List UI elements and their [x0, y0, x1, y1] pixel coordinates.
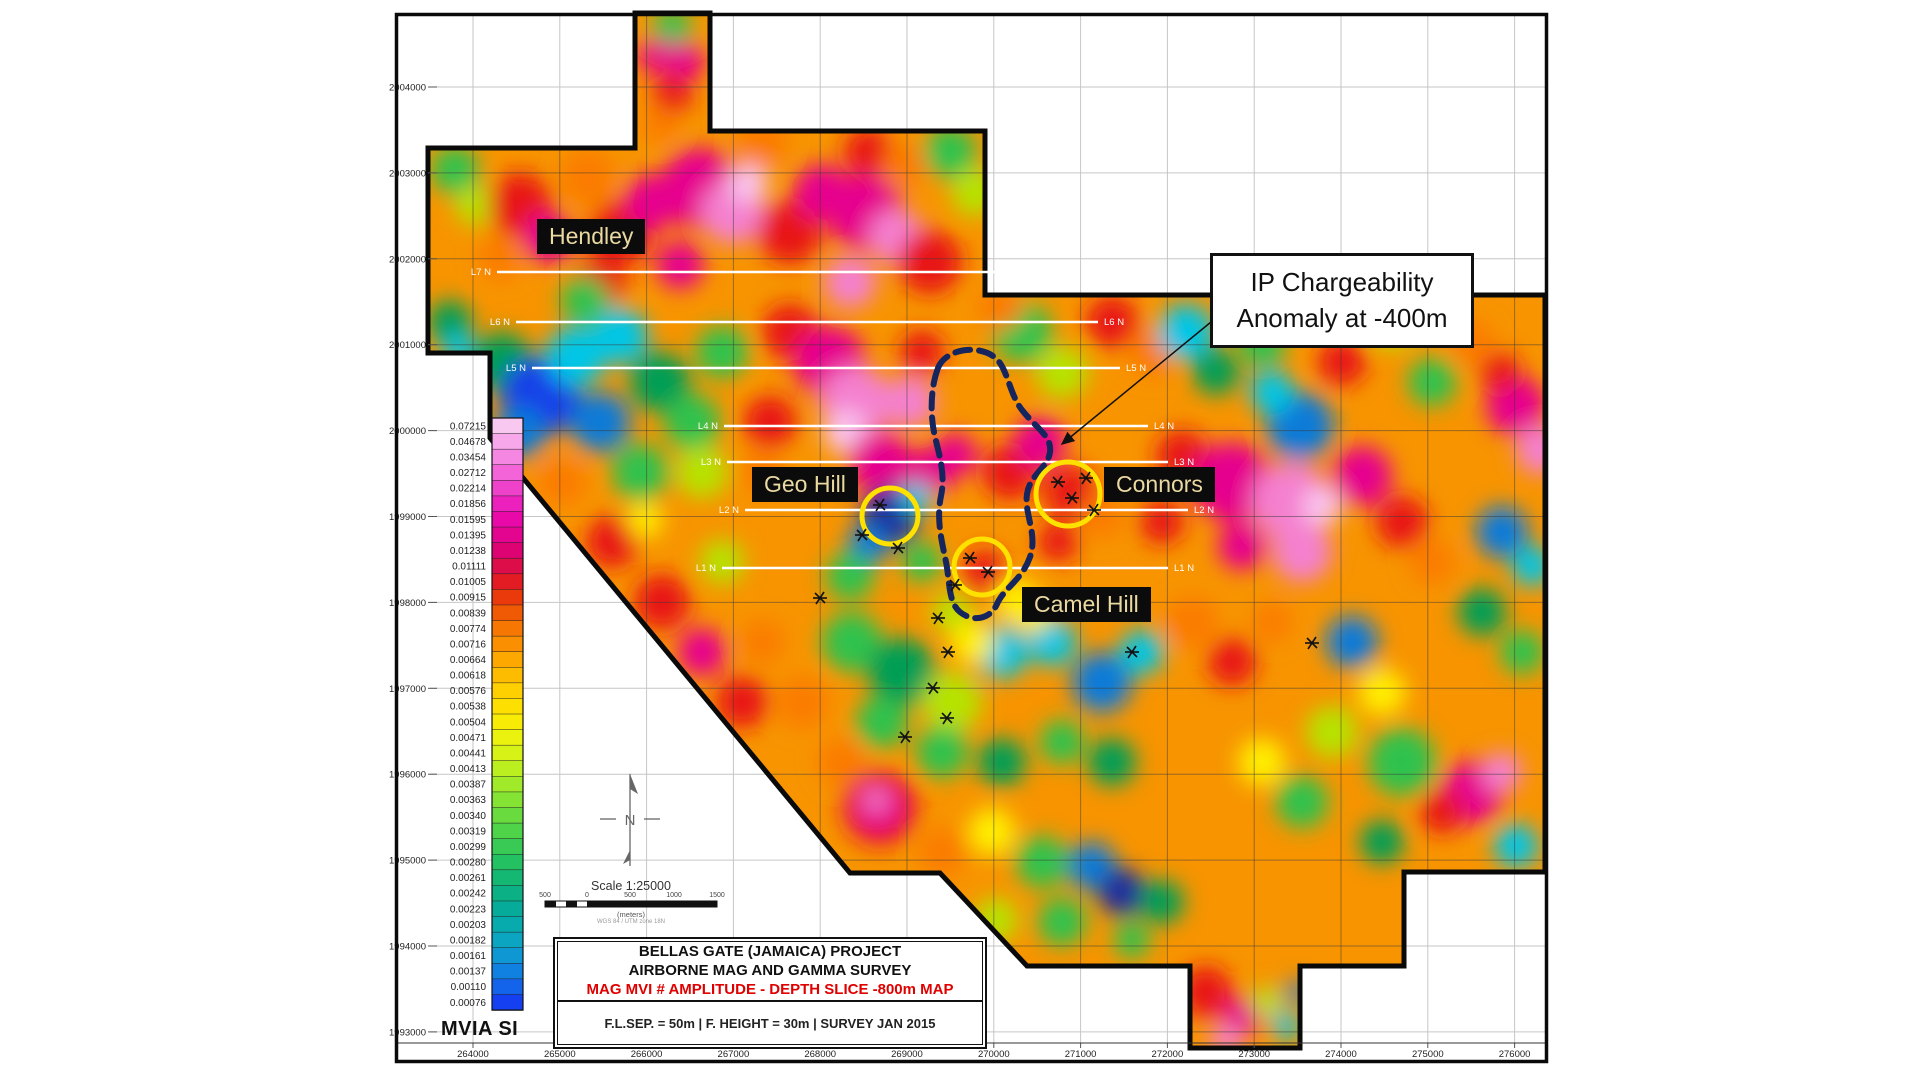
legend-value: 0.00576	[450, 686, 487, 697]
x-axis-label: 273000	[1238, 1049, 1270, 1060]
legend-value: 0.00242	[450, 889, 487, 900]
legend-value: 0.04678	[450, 437, 487, 448]
flight-line-label: L2 N	[719, 505, 739, 516]
mag-heatmap	[420, 8, 1564, 1056]
legend-value: 0.00538	[450, 702, 487, 713]
legend-value: 0.00839	[450, 608, 487, 619]
scale-caption: Scale 1:25000	[591, 879, 671, 893]
ip-anomaly-annotation-line1: IP Chargeability	[1250, 265, 1433, 300]
scale-tick-label: 500	[539, 892, 551, 899]
legend-value: 0.00137	[450, 967, 487, 978]
scale-tick-label: 0	[585, 892, 589, 899]
y-axis-label: 1993000	[389, 1027, 426, 1038]
scale-tick-label: 1000	[666, 892, 682, 899]
map-title-block-inner: BELLAS GATE (JAMAICA) PROJECT AIRBORNE M…	[557, 941, 983, 1045]
x-axis-label: 265000	[544, 1049, 576, 1060]
north-arrow: N	[600, 774, 660, 866]
legend-value: 0.00280	[450, 858, 487, 869]
survey-spec-line: F.L.SEP. = 50m | F. HEIGHT = 30m | SURVE…	[558, 1002, 982, 1044]
map-canvas: L7 NL7 NL6 NL6 NL5 NL5 NL4 NL4 NL3 NL3 N…	[0, 0, 1920, 1080]
survey-title: AIRBORNE MAG AND GAMMA SURVEY	[629, 962, 912, 980]
legend-value: 0.01595	[450, 515, 487, 526]
legend-value: 0.00774	[450, 624, 487, 635]
scale-tick-label: 500	[624, 892, 636, 899]
legend-value: 0.00413	[450, 764, 487, 775]
legend-value: 0.00110	[451, 982, 487, 993]
legend-value: 0.00161	[450, 951, 487, 962]
x-axis-label: 272000	[1152, 1049, 1184, 1060]
legend-title: MVIA SI	[441, 1018, 518, 1041]
flight-line-label: L2 N	[1194, 505, 1214, 516]
legend-value: 0.00319	[450, 826, 487, 837]
legend-value: 0.07215	[450, 421, 487, 432]
legend-value: 0.00664	[450, 655, 487, 666]
flight-line-label: L5 N	[506, 363, 526, 374]
y-axis-label: 2001000	[389, 340, 426, 351]
x-axis-label: 264000	[457, 1049, 489, 1060]
flight-line-label: L6 N	[490, 317, 510, 328]
flight-line-label: L6 N	[1104, 317, 1124, 328]
x-axis-label: 266000	[631, 1049, 663, 1060]
x-axis-label: 268000	[804, 1049, 836, 1060]
legend-value: 0.00618	[450, 671, 487, 682]
svg-text:N: N	[625, 812, 636, 829]
legend-value: 0.03454	[450, 452, 487, 463]
legend-value: 0.01005	[450, 577, 487, 588]
legend-value: 0.00471	[450, 733, 487, 744]
x-axis-label: 267000	[718, 1049, 750, 1060]
flight-line-label: L7 N	[471, 267, 491, 278]
legend-value: 0.00387	[450, 780, 487, 791]
y-axis-label: 1995000	[389, 856, 426, 867]
scale-bar: 500050010001500	[539, 892, 725, 907]
flight-line-label: L1 N	[1174, 563, 1194, 574]
legend-value: 0.00299	[450, 842, 487, 853]
flight-line-label: L1 N	[696, 563, 716, 574]
flight-line-label: L4 N	[698, 421, 718, 432]
flight-line-label: L4 N	[1154, 421, 1174, 432]
project-title: BELLAS GATE (JAMAICA) PROJECT	[639, 943, 901, 961]
scale-tick-label: 1500	[709, 892, 725, 899]
x-axis-label: 276000	[1499, 1049, 1531, 1060]
map-title-block-titles: BELLAS GATE (JAMAICA) PROJECT AIRBORNE M…	[558, 942, 982, 1002]
scale-units: (meters)	[617, 910, 645, 919]
y-axis-label: 2004000	[389, 83, 426, 94]
y-axis-label: 1996000	[389, 770, 426, 781]
y-axis-label: 1997000	[389, 684, 426, 695]
place-label-hendley: Hendley	[537, 219, 645, 254]
y-axis-label: 2003000	[389, 168, 426, 179]
legend-value: 0.02712	[450, 468, 487, 479]
x-axis-label: 269000	[891, 1049, 923, 1060]
legend-value: 0.00182	[450, 935, 487, 946]
legend-value: 0.01856	[450, 499, 487, 510]
legend-value: 0.01238	[450, 546, 487, 557]
flight-line-label: L3 N	[701, 457, 721, 468]
map-title-block: BELLAS GATE (JAMAICA) PROJECT AIRBORNE M…	[553, 937, 987, 1049]
legend-value: 0.01111	[452, 562, 486, 573]
x-axis-label: 271000	[1065, 1049, 1097, 1060]
legend-value: 0.00716	[450, 639, 487, 650]
legend-value: 0.00915	[450, 593, 487, 604]
legend-value: 0.00441	[450, 749, 487, 760]
legend-value: 0.00340	[450, 811, 487, 822]
legend-value: 0.00203	[450, 920, 487, 931]
y-axis-label: 1999000	[389, 512, 426, 523]
ip-anomaly-annotation: IP Chargeability Anomaly at -400m	[1210, 253, 1474, 348]
flight-line-label: L7 N	[1084, 267, 1104, 278]
scale-datum: WGS 84 / UTM zone 18N	[597, 919, 665, 925]
legend-value: 0.00223	[450, 904, 487, 915]
legend-value: 0.00261	[450, 873, 487, 884]
legend-colorbar: 0.072150.046780.034540.027120.022140.018…	[450, 418, 523, 1010]
place-label-geo-hill: Geo Hill	[752, 467, 858, 502]
map-type-title: MAG MVI # AMPLITUDE - DEPTH SLICE -800m …	[587, 981, 954, 999]
place-label-camel-hill: Camel Hill	[1022, 587, 1151, 622]
y-axis-label: 1998000	[389, 598, 426, 609]
ip-anomaly-annotation-line2: Anomaly at -400m	[1237, 301, 1448, 336]
legend-value: 0.01395	[450, 530, 487, 541]
legend-value: 0.00504	[450, 717, 487, 728]
x-axis-label: 275000	[1412, 1049, 1444, 1060]
legend-value: 0.00363	[450, 795, 487, 806]
x-axis-label: 270000	[978, 1049, 1010, 1060]
legend-value: 0.00076	[450, 998, 487, 1009]
flight-line-label: L5 N	[1126, 363, 1146, 374]
x-axis-label: 274000	[1325, 1049, 1357, 1060]
y-axis-label: 2002000	[389, 254, 426, 265]
legend-value: 0.02214	[450, 484, 487, 495]
y-axis-label: 2000000	[389, 426, 426, 437]
y-axis-label: 1994000	[389, 942, 426, 953]
place-label-connors: Connors	[1104, 467, 1215, 502]
